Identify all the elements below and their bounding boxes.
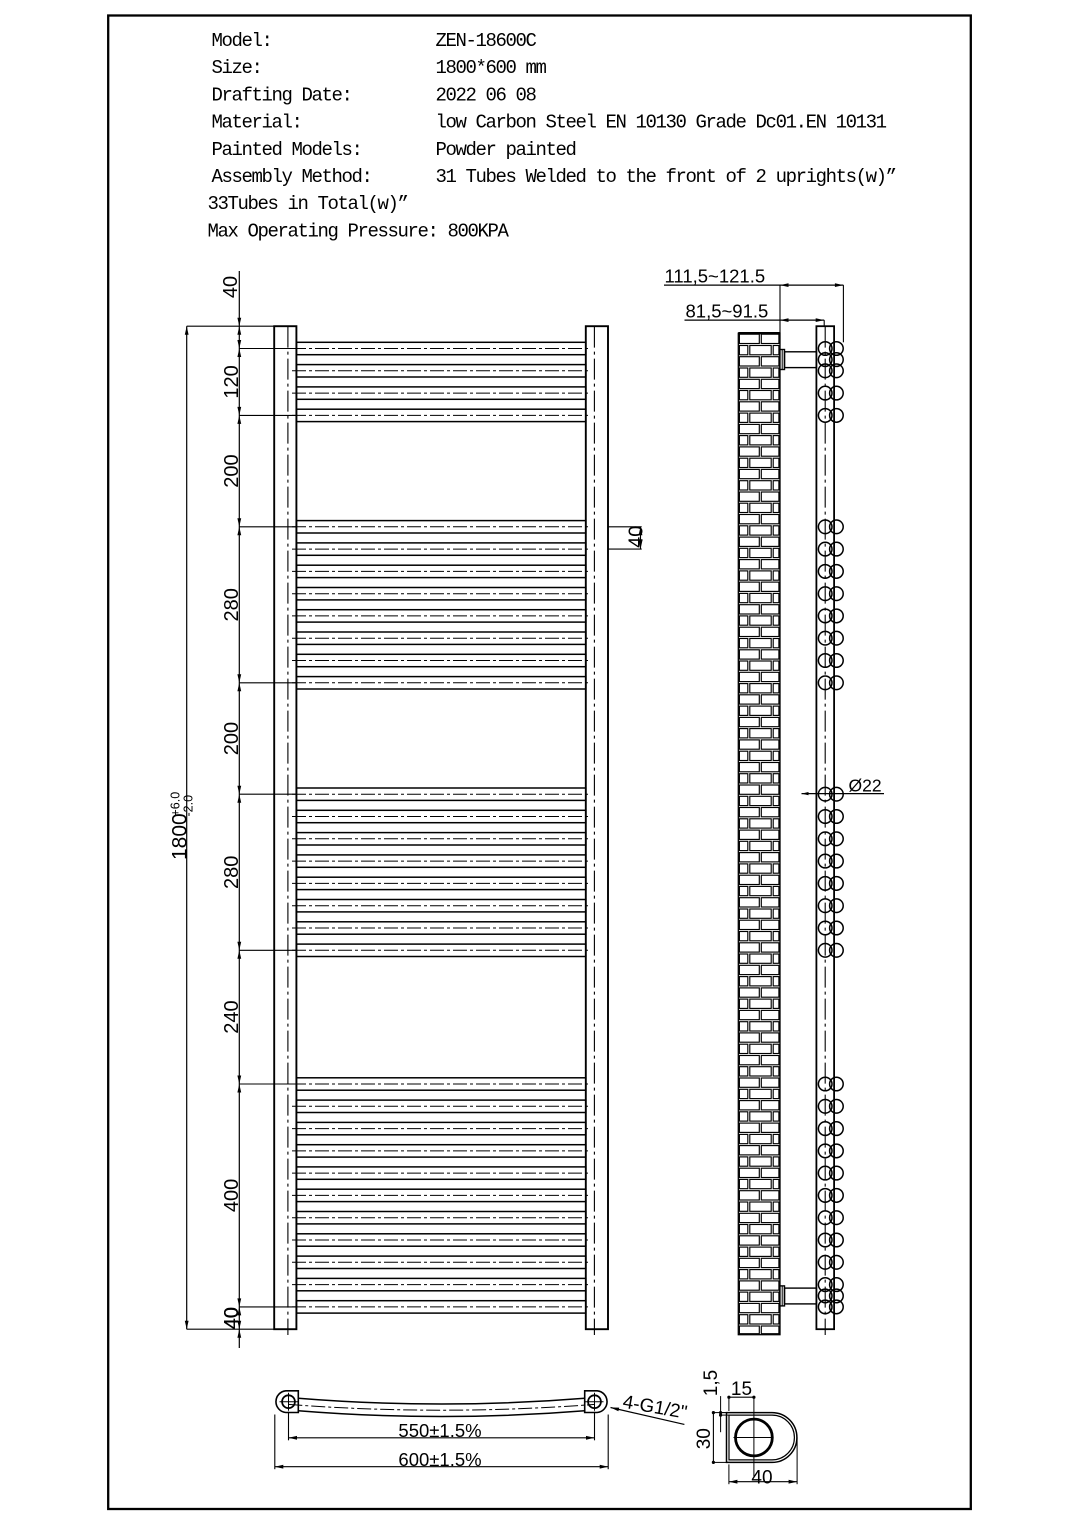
svg-text:Painted Models:: Painted Models: [212, 139, 362, 161]
svg-text:40: 40 [751, 1468, 772, 1489]
svg-text:280: 280 [221, 856, 243, 889]
svg-text:120: 120 [221, 365, 243, 398]
svg-text:ZEN-18600C: ZEN-18600C [436, 30, 537, 52]
svg-text:Powder painted: Powder painted [436, 139, 576, 161]
svg-text:111,5~121.5: 111,5~121.5 [665, 266, 766, 287]
svg-text:1,5: 1,5 [701, 1370, 722, 1396]
svg-text:Max Operating Pressure: 800KPA: Max Operating Pressure: 800KPA [208, 220, 510, 242]
svg-text:31 Tubes Welded to the front o: 31 Tubes Welded to the front of 2 uprigh… [436, 166, 896, 188]
svg-text:200: 200 [221, 722, 243, 755]
svg-text:Ø22: Ø22 [849, 776, 882, 796]
svg-text:240: 240 [221, 1000, 243, 1033]
svg-text:Drafting Date:: Drafting Date: [212, 84, 352, 106]
svg-text:280: 280 [221, 588, 243, 621]
svg-text:550±1.5%: 550±1.5% [398, 1420, 481, 1441]
svg-text:Size:: Size: [212, 57, 262, 79]
svg-text:Material:: Material: [212, 112, 302, 134]
svg-text:15: 15 [731, 1379, 752, 1400]
svg-text:-2.0: -2.0 [181, 795, 195, 817]
svg-text:33Tubes in Total(w)”: 33Tubes in Total(w)” [208, 193, 408, 215]
svg-text:400: 400 [221, 1179, 243, 1212]
svg-text:200: 200 [221, 454, 243, 487]
svg-text:1800: 1800 [168, 813, 191, 860]
svg-text:600±1.5%: 600±1.5% [398, 1449, 481, 1470]
svg-text:Assembly Method:: Assembly Method: [212, 166, 372, 188]
svg-text:40: 40 [221, 1307, 243, 1329]
svg-text:81,5~91.5: 81,5~91.5 [686, 301, 769, 322]
svg-text:40: 40 [626, 526, 648, 548]
svg-text:40: 40 [220, 276, 242, 298]
svg-text:low Carbon Steel EN 10130 Gra: low Carbon Steel EN 10130 Grade Dc01.EN … [436, 112, 887, 134]
svg-text:4-G1/2": 4-G1/2" [621, 1392, 689, 1424]
svg-text:30: 30 [694, 1428, 715, 1449]
svg-text:2022 06 08: 2022 06 08 [436, 84, 537, 106]
svg-text:+6.0: +6.0 [168, 792, 182, 817]
svg-text:Model:: Model: [212, 30, 272, 52]
svg-text:1800*600 mm: 1800*600 mm [436, 57, 547, 79]
